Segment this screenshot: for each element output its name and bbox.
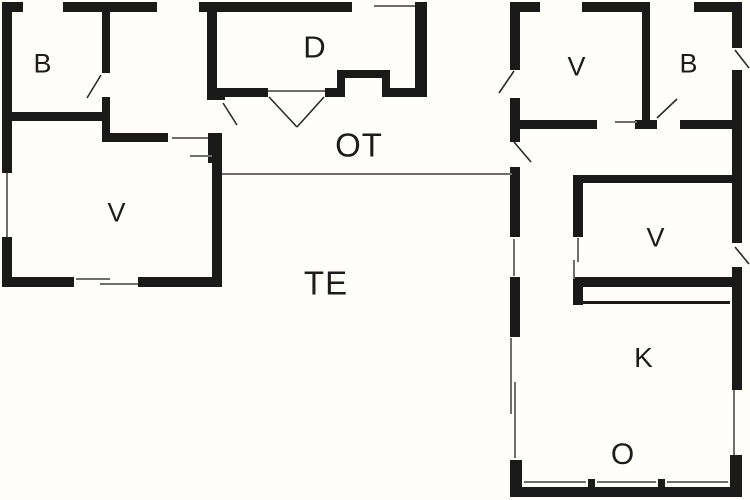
floor-plan: BDVOTTEVBVKO (0, 0, 750, 500)
room-label-ot: OT (335, 129, 383, 162)
room-label-b-right: B (679, 51, 698, 78)
room-label-v-right-top: V (567, 54, 586, 81)
room-label-o: O (611, 440, 635, 470)
room-label-v-right-mid: V (646, 225, 665, 252)
room-label-layer: BDVOTTEVBVKO (0, 0, 750, 500)
room-label-te: TE (304, 267, 348, 300)
room-label-d: D (303, 32, 326, 63)
room-label-k: K (634, 344, 654, 372)
room-label-b-left: B (33, 51, 52, 78)
room-label-v-left: V (107, 200, 126, 227)
